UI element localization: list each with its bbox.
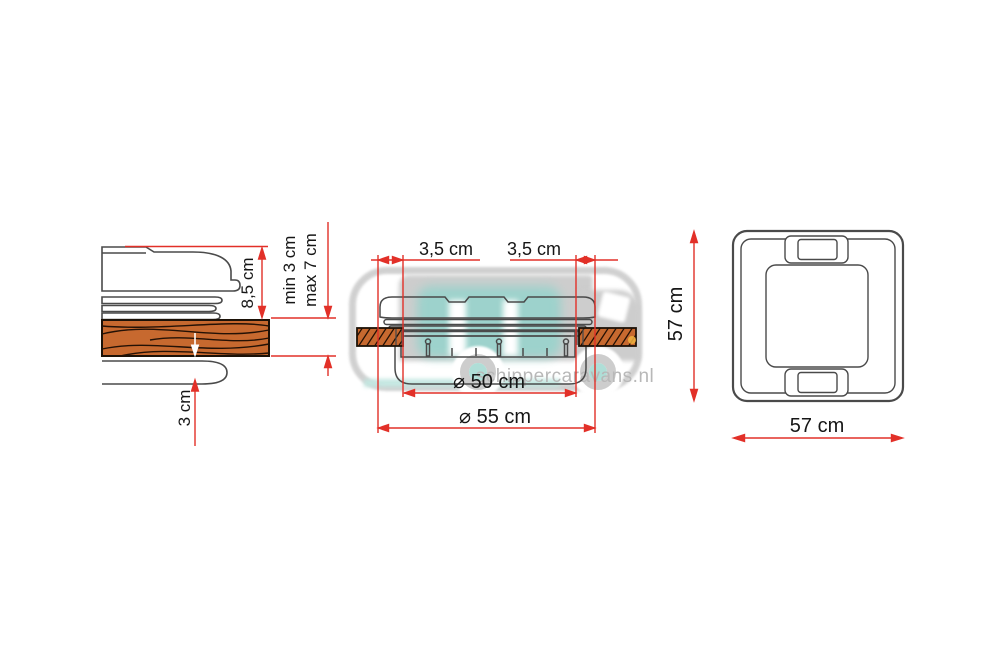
dim-label-roof-thickness: min 3 cm max 7 cm [279,220,321,320]
dim-label-outer-diameter: ⌀ 55 cm [440,404,550,429]
dim-label-lid-height: 8,5 cm [238,243,258,323]
dim-label-flange-left: 3,5 cm [406,239,486,260]
section-roof-board-left [350,327,411,347]
watermark-blinker-dot [628,336,636,344]
dimension-lines-svg [0,0,1000,667]
dim-label-top-width: 57 cm [777,415,857,438]
dim-label-roof-min: min 3 cm [279,220,300,320]
dim-label-flange-right: 3,5 cm [494,239,574,260]
side-roof-board [102,320,269,356]
dim-label-top-height: 57 cm [665,274,687,354]
dim-label-cutout-diameter: ⌀ 50 cm [434,369,544,394]
roof-vent-dimension-diagram: schippercaravans.nl [0,0,1000,667]
section-roof-board-right [572,327,641,347]
dim-label-roof-max: max 7 cm [300,220,321,320]
dim-label-frame-depth: 3 cm [175,378,193,438]
